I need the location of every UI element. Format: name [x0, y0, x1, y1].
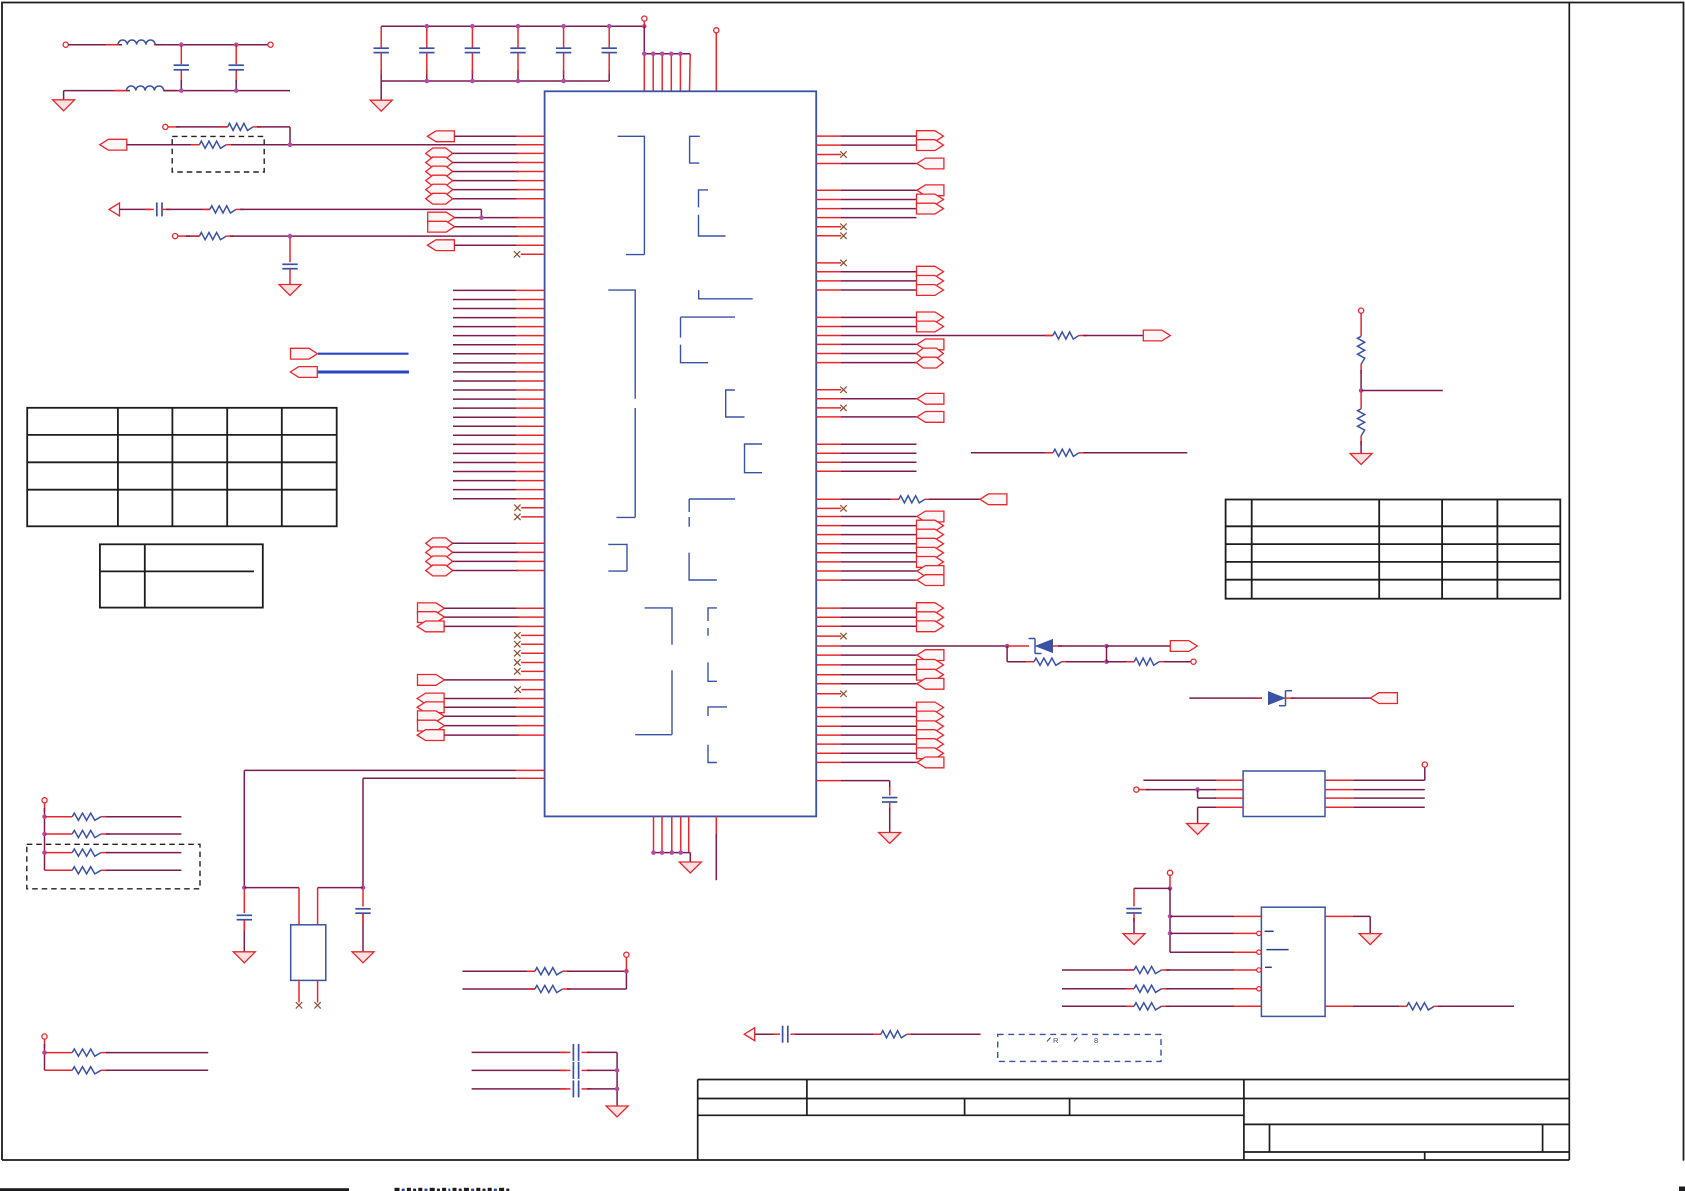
- svg-text:8: 8: [1094, 1036, 1098, 1045]
- svg-text:R: R: [1053, 1036, 1059, 1045]
